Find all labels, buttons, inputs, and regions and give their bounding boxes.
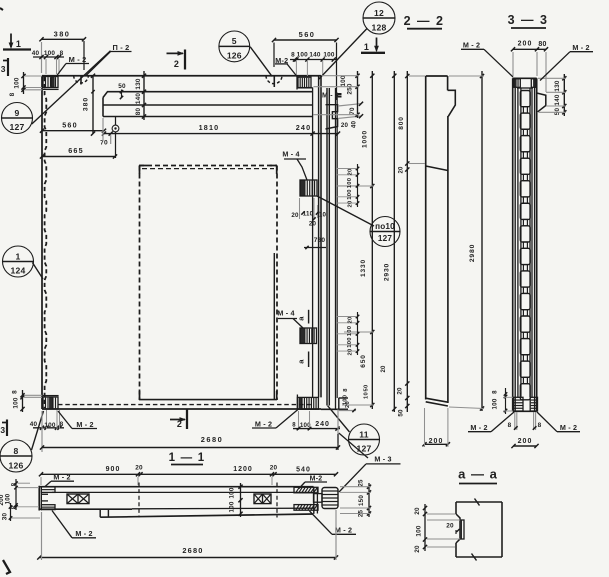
- svg-text:1330: 1330: [360, 259, 367, 277]
- svg-text:M - 2: M - 2: [75, 529, 92, 538]
- svg-text:100: 100: [347, 189, 353, 200]
- svg-text:250: 250: [347, 83, 354, 95]
- svg-text:130: 130: [135, 78, 142, 90]
- svg-text:380: 380: [83, 97, 90, 111]
- svg-text:M - 2: M - 2: [53, 473, 70, 482]
- svg-text:12: 12: [374, 8, 384, 18]
- svg-text:20: 20: [348, 200, 354, 207]
- svg-text:100: 100: [323, 52, 335, 59]
- svg-text:П - 2: П - 2: [113, 43, 130, 52]
- svg-text:M - 2: M - 2: [76, 420, 93, 429]
- svg-text:3: 3: [1, 64, 6, 74]
- svg-text:100: 100: [6, 493, 12, 504]
- svg-text:200: 200: [518, 41, 533, 48]
- svg-text:5: 5: [232, 36, 237, 46]
- svg-text:560: 560: [62, 121, 78, 130]
- svg-text:a — a: a — a: [458, 467, 498, 482]
- svg-text:9: 9: [15, 108, 20, 118]
- svg-text:M - 2: M - 2: [335, 526, 352, 535]
- svg-text:126: 126: [9, 461, 24, 471]
- svg-text:8: 8: [14, 446, 19, 456]
- svg-text:3: 3: [0, 425, 5, 435]
- svg-text:8: 8: [9, 92, 16, 96]
- svg-text:100: 100: [343, 395, 349, 405]
- svg-text:20: 20: [270, 465, 278, 472]
- svg-text:100: 100: [297, 52, 309, 59]
- svg-text:2680: 2680: [201, 435, 223, 444]
- svg-text:200: 200: [518, 438, 533, 445]
- svg-text:M - 4: M - 4: [277, 309, 294, 318]
- svg-text:20: 20: [348, 168, 354, 175]
- svg-text:100: 100: [44, 50, 56, 57]
- svg-text:20: 20: [414, 545, 421, 553]
- svg-text:2 — 2: 2 — 2: [404, 14, 445, 28]
- svg-text:8: 8: [12, 390, 19, 394]
- svg-text:70: 70: [100, 140, 108, 147]
- svg-text:40: 40: [30, 421, 38, 428]
- svg-text:100: 100: [229, 487, 236, 498]
- svg-text:a: a: [297, 316, 306, 321]
- svg-text:380: 380: [54, 30, 71, 39]
- svg-text:560: 560: [299, 30, 316, 39]
- svg-text:1: 1: [16, 39, 21, 49]
- svg-text:240: 240: [296, 123, 312, 132]
- svg-text:100: 100: [13, 397, 20, 409]
- svg-text:20: 20: [399, 166, 405, 174]
- svg-text:200: 200: [0, 494, 5, 506]
- svg-text:M - 2: M - 2: [572, 43, 589, 52]
- svg-text:100: 100: [229, 501, 236, 512]
- svg-text:100: 100: [14, 77, 21, 89]
- svg-text:200: 200: [429, 438, 444, 445]
- svg-text:127: 127: [378, 234, 393, 243]
- svg-text:80: 80: [538, 41, 546, 48]
- svg-text:800: 800: [398, 116, 405, 129]
- svg-text:M - 2: M - 2: [255, 420, 272, 429]
- svg-text:10: 10: [364, 392, 370, 399]
- svg-text:8: 8: [60, 50, 64, 57]
- svg-text:a: a: [297, 359, 306, 364]
- svg-text:665: 665: [68, 146, 84, 155]
- svg-text:1 — 1: 1 — 1: [169, 452, 206, 464]
- svg-text:20: 20: [341, 122, 349, 129]
- svg-text:100: 100: [347, 177, 353, 188]
- svg-text:30: 30: [2, 513, 9, 521]
- svg-text:730: 730: [314, 237, 326, 244]
- svg-text:50: 50: [398, 409, 405, 417]
- svg-text:240: 240: [315, 421, 330, 428]
- svg-text:8: 8: [508, 422, 512, 429]
- svg-text:20: 20: [135, 465, 143, 472]
- svg-text:M - 3: M - 3: [322, 93, 339, 100]
- svg-text:40: 40: [32, 50, 40, 57]
- svg-text:20: 20: [291, 212, 299, 219]
- svg-text:20: 20: [348, 348, 354, 355]
- svg-text:540: 540: [296, 467, 311, 474]
- svg-text:2980: 2980: [469, 244, 476, 262]
- svg-text:2: 2: [177, 419, 182, 429]
- svg-text:140: 140: [554, 94, 561, 106]
- svg-text:2680: 2680: [182, 546, 203, 555]
- svg-text:127: 127: [357, 444, 372, 454]
- svg-text:1000: 1000: [362, 130, 369, 148]
- svg-text:20: 20: [309, 221, 317, 228]
- svg-text:150: 150: [358, 495, 365, 506]
- svg-text:650: 650: [360, 354, 367, 367]
- svg-text:8: 8: [538, 422, 542, 429]
- svg-text:100: 100: [347, 325, 353, 336]
- svg-text:11: 11: [359, 429, 369, 439]
- svg-text:127: 127: [10, 122, 25, 132]
- svg-text:80: 80: [135, 108, 142, 116]
- svg-text:50: 50: [554, 108, 561, 116]
- svg-text:70: 70: [349, 107, 356, 115]
- svg-text:по10: по10: [375, 222, 395, 231]
- svg-text:1200: 1200: [233, 466, 253, 473]
- svg-text:140: 140: [309, 52, 321, 59]
- svg-text:M - 3: M - 3: [374, 455, 391, 464]
- svg-text:8: 8: [343, 388, 349, 392]
- svg-text:2930: 2930: [384, 263, 391, 281]
- svg-text:20: 20: [446, 523, 454, 530]
- svg-text:50: 50: [364, 385, 370, 392]
- svg-text:100: 100: [347, 337, 353, 348]
- svg-text:M - 2: M - 2: [470, 423, 487, 432]
- svg-text:8: 8: [291, 52, 295, 59]
- svg-text:1: 1: [364, 42, 369, 52]
- svg-text:3 — 3: 3 — 3: [508, 13, 549, 27]
- svg-text:100: 100: [492, 398, 499, 409]
- svg-text:8: 8: [492, 390, 499, 394]
- svg-text:900: 900: [106, 466, 121, 473]
- svg-text:20: 20: [397, 387, 404, 395]
- svg-text:8: 8: [292, 423, 296, 429]
- svg-text:M - 2: M - 2: [463, 41, 480, 50]
- svg-text:20: 20: [414, 507, 421, 515]
- svg-text:8: 8: [60, 421, 64, 428]
- svg-text:20: 20: [348, 316, 354, 323]
- svg-text:40: 40: [351, 121, 358, 129]
- svg-text:1: 1: [16, 251, 21, 261]
- svg-text:M - 2: M - 2: [69, 55, 87, 64]
- svg-text:20: 20: [381, 365, 387, 373]
- svg-text:2: 2: [174, 59, 179, 69]
- svg-text:130: 130: [554, 80, 561, 92]
- svg-text:10: 10: [319, 212, 327, 219]
- svg-text:124: 124: [11, 266, 26, 276]
- svg-text:50: 50: [118, 83, 126, 90]
- svg-text:100: 100: [44, 422, 56, 429]
- svg-text:140: 140: [135, 93, 142, 105]
- svg-text:1810: 1810: [199, 123, 220, 132]
- svg-text:25: 25: [358, 479, 365, 487]
- svg-text:M - 2: M - 2: [560, 423, 577, 432]
- svg-text:126: 126: [227, 51, 242, 61]
- svg-text:M - 4: M - 4: [282, 150, 299, 159]
- svg-text:100: 100: [416, 525, 423, 537]
- svg-text:128: 128: [372, 23, 387, 33]
